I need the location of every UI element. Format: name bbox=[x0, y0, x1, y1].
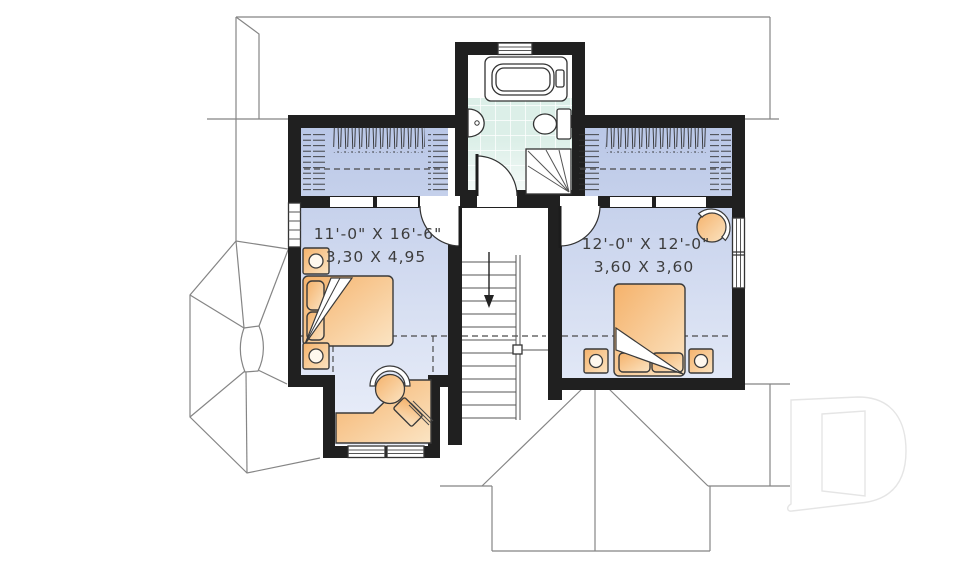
bathtub-icon bbox=[485, 57, 567, 101]
tub-faucet bbox=[556, 70, 564, 87]
bedroom-left-metric-dimension: 3,30 X 4,95 bbox=[326, 248, 427, 266]
stairs-down-arrow bbox=[484, 252, 494, 308]
window-right-wall bbox=[733, 218, 745, 288]
dormer-roof bbox=[440, 384, 790, 551]
double-bed-right bbox=[614, 284, 685, 376]
stair-newel-post bbox=[513, 345, 522, 354]
closet-left-door-opening bbox=[330, 197, 373, 207]
watermark-d-logo bbox=[788, 397, 906, 511]
bedroom-right-imperial-dimension: 12'-0" X 12'-0" bbox=[582, 235, 711, 253]
bedroom-right-metric-dimension: 3,60 X 3,60 bbox=[594, 258, 695, 276]
window-bathroom bbox=[498, 43, 532, 55]
closet-right-door-opening bbox=[610, 197, 652, 207]
double-bed-left bbox=[303, 276, 393, 346]
bedroom-left-imperial-dimension: 11'-0" X 16'-6" bbox=[314, 225, 443, 243]
closet-hanging-rod bbox=[333, 127, 425, 153]
stair-railing bbox=[516, 255, 520, 420]
nightstand-with-lamp bbox=[689, 349, 713, 373]
floor-plan-svg: 11'-0" X 16'-6" 3,30 X 4,95 12'-0" X 12'… bbox=[0, 0, 960, 569]
window-left-wall bbox=[289, 203, 301, 247]
nightstand-with-lamp bbox=[303, 343, 329, 369]
closet-shelf-lines bbox=[428, 130, 448, 194]
closet-left-door-opening bbox=[377, 197, 418, 207]
nightstand-with-lamp bbox=[584, 349, 608, 373]
corner-shower-icon bbox=[526, 149, 571, 194]
closet-hanging-rod bbox=[605, 127, 708, 153]
closet-shelf-lines bbox=[579, 130, 601, 194]
floor-plan-page: 11'-0" X 16'-6" 3,30 X 4,95 12'-0" X 12'… bbox=[0, 0, 960, 569]
closet-right-door-opening bbox=[656, 197, 706, 207]
closet-shelf-lines bbox=[303, 130, 325, 194]
closet-shelf-lines bbox=[710, 130, 731, 194]
